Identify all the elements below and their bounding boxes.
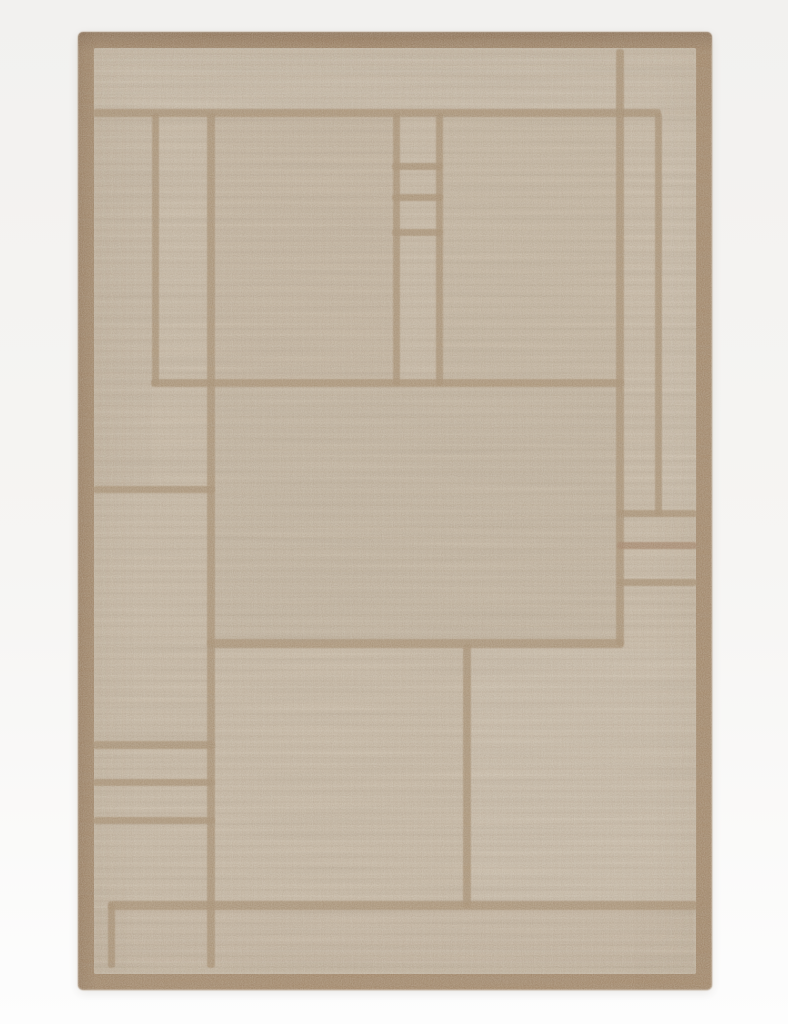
rug-panel-tint <box>661 116 697 511</box>
pattern-line-vertical <box>436 113 443 386</box>
rug-panel-tint <box>214 387 617 640</box>
pattern-line-horizontal <box>617 579 697 586</box>
rug-panel-tint <box>93 49 697 111</box>
pattern-line-horizontal <box>93 486 215 493</box>
pattern-line-vertical <box>463 643 471 908</box>
pattern-line-horizontal <box>108 901 697 910</box>
pattern-line-horizontal <box>392 229 443 236</box>
rug-pattern-layer <box>78 32 712 990</box>
photo-canvas: { "image": { "type": "product-photograph… <box>0 0 788 1024</box>
pattern-line-vertical <box>393 113 400 386</box>
pattern-line-horizontal <box>93 817 215 824</box>
pattern-line-horizontal <box>93 109 661 117</box>
pattern-line-horizontal <box>392 163 443 170</box>
pattern-line-vertical <box>152 113 159 386</box>
pattern-line-vertical <box>108 903 115 968</box>
pattern-line-horizontal <box>93 741 215 749</box>
pattern-line-horizontal <box>151 379 624 387</box>
pattern-line-horizontal <box>207 639 624 648</box>
rug-panel-tint <box>214 116 393 381</box>
pattern-line-vertical <box>655 113 662 516</box>
pattern-line-vertical <box>616 49 624 646</box>
rug-panel-tint <box>93 116 152 486</box>
rug-photo <box>78 32 712 990</box>
pattern-line-horizontal <box>617 510 697 517</box>
pattern-line-horizontal <box>617 542 697 549</box>
rug-panel-tint <box>93 908 693 968</box>
pattern-line-horizontal <box>392 194 443 201</box>
rug-panel-tint <box>470 647 697 902</box>
pattern-line-vertical <box>207 113 215 968</box>
pattern-line-horizontal <box>93 779 215 786</box>
rug-panel-tint <box>443 116 617 381</box>
